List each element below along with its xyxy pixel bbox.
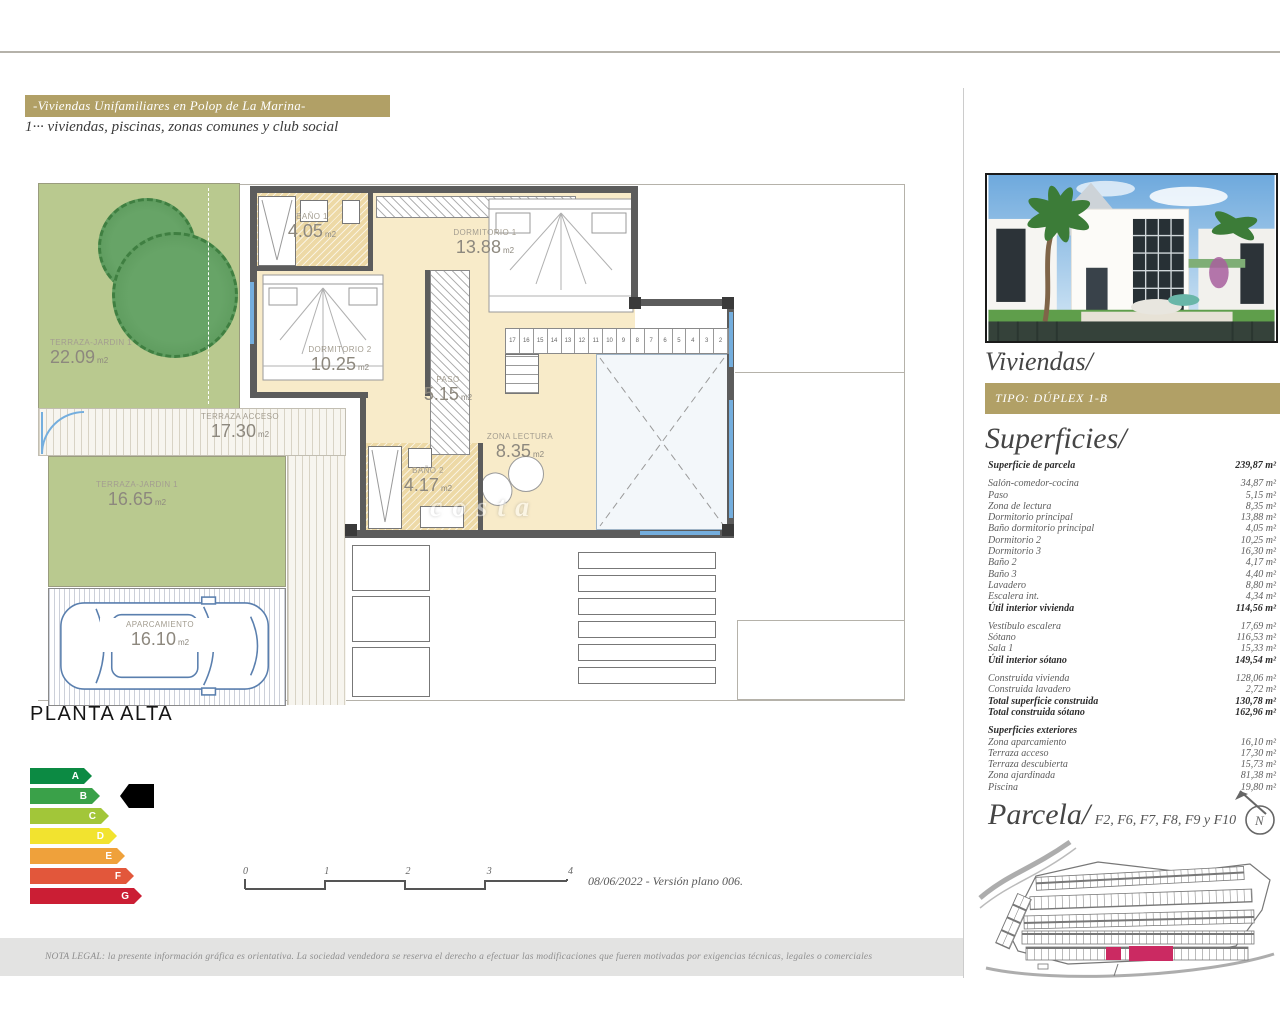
stair-tread: 17 — [506, 329, 520, 353]
superficies-row: Útil interior sótano149,54 m² — [988, 655, 1276, 666]
superficies-table: Superficie de parcela239,87 m²Salón-come… — [988, 460, 1276, 800]
access-door-arc — [38, 408, 90, 458]
stair-tread: 3 — [700, 329, 714, 353]
superficies-row: Dormitorio principal13,88 m² — [988, 512, 1276, 523]
stair-tread: 15 — [534, 329, 548, 353]
stair-tread: 6 — [659, 329, 673, 353]
stair-return-flight — [505, 354, 539, 394]
rear-patio-outline — [737, 620, 905, 700]
superficies-group: Vestíbulo escalera17,69 m²Sótano116,53 m… — [988, 621, 1276, 666]
stair-tread: 12 — [575, 329, 589, 353]
north-compass-icon: N — [1232, 788, 1280, 840]
wall-segment — [368, 192, 373, 270]
superficies-group: Superficie de parcela239,87 m² — [988, 460, 1276, 471]
development-title-banner: -Viviendas Unifamiliares en Polop de La … — [25, 95, 390, 117]
parcela-plots: F2, F6, F7, F8, F9 y F10 — [1095, 813, 1237, 828]
louver-slat — [578, 667, 716, 684]
stair-tread: 14 — [548, 329, 562, 353]
room-label-bedroom1: DORMITORIO 1 13.88m2 — [415, 228, 555, 258]
superficies-row: Superficies exteriores — [988, 725, 1276, 736]
column — [629, 297, 641, 309]
viviendas-heading: Viviendas/ — [985, 347, 1093, 377]
room-label-reading-zone: ZONA LECTURA 8.35m2 — [465, 432, 575, 462]
column — [722, 524, 734, 536]
scale-tick-labels: 01234 — [243, 866, 573, 877]
louver-slat — [578, 575, 716, 592]
superficies-heading: Superficies/ — [985, 422, 1127, 456]
scale-bar-line — [243, 877, 573, 891]
stair-tread: 11 — [589, 329, 603, 353]
louver-slat — [578, 552, 716, 569]
stair-tread: 9 — [617, 329, 631, 353]
superficies-row: Salón-comedor-cocina34,87 m² — [988, 478, 1276, 489]
wall-segment — [631, 299, 733, 306]
scale-tick-label: 1 — [324, 866, 329, 877]
legal-note-text: NOTA LEGAL: la presente información gráf… — [0, 952, 872, 962]
plan-title: PLANTA ALTA — [30, 703, 173, 726]
stair-tread: 5 — [673, 329, 687, 353]
wall-segment — [253, 266, 373, 271]
stair-tread: 7 — [645, 329, 659, 353]
wall-segment — [360, 396, 366, 536]
terrace-access-strip — [287, 456, 346, 705]
superficies-row: Dormitorio 210,25 m² — [988, 535, 1276, 546]
wall-segment — [253, 392, 368, 398]
superficies-group: Construida vivienda128,06 m²Construida l… — [988, 673, 1276, 718]
superficies-row: Útil interior vivienda114,56 m² — [988, 603, 1276, 614]
terrace-garden-2-area — [48, 456, 286, 587]
louver-slat — [578, 644, 716, 661]
room-label-parking: APARCAMIENTO 16.10m2 — [100, 618, 220, 652]
property-line — [735, 372, 905, 373]
window-glazing — [640, 531, 720, 535]
superficies-row: Baño 34,40 m² — [988, 569, 1276, 580]
stair-tread: 13 — [562, 329, 576, 353]
superficies-row: Terraza descubierta15,73 m² — [988, 759, 1276, 770]
parcela-heading-block: Parcela/ F2, F6, F7, F8, F9 y F10 — [988, 798, 1236, 832]
superficies-row: Sala 115,33 m² — [988, 643, 1276, 654]
window-glazing — [729, 312, 733, 367]
energy-grade-F: F — [30, 868, 134, 884]
window-glazing — [250, 282, 254, 344]
superficies-row: Sótano116,53 m² — [988, 632, 1276, 643]
superficies-row: Zona ajardinada81,38 m² — [988, 770, 1276, 781]
superficies-row: Total construida sótano162,96 m² — [988, 707, 1276, 718]
column — [722, 297, 734, 309]
garden-dashed-line — [208, 188, 210, 404]
superficies-row: Baño dormitorio principal4,05 m² — [988, 523, 1276, 534]
window-glazing — [729, 400, 733, 518]
energy-row: E — [30, 848, 230, 864]
room-label-hall: PASO 5.15m2 — [408, 375, 488, 405]
stair-tread: 16 — [520, 329, 534, 353]
room-label-bedroom2: DORMITORIO 2 10.25m2 — [275, 345, 405, 375]
superficies-row: Lavadero8,80 m² — [988, 580, 1276, 591]
superficies-row: Vestíbulo escalera17,69 m² — [988, 621, 1276, 632]
superficies-row: Zona aparcamiento16,10 m² — [988, 737, 1276, 748]
energy-rating-chart: ABCDEFG — [30, 768, 230, 908]
stair-tread: 4 — [686, 329, 700, 353]
highlighted-plot — [1129, 946, 1173, 961]
stair-tread: 8 — [631, 329, 645, 353]
energy-row: F — [30, 868, 230, 884]
scale-tick-label: 2 — [406, 866, 411, 877]
room-label-garden2: TERRAZA-JARDIN 1 16.65m2 — [72, 480, 202, 510]
wall-segment — [250, 186, 638, 193]
wardrobe-hatch — [430, 270, 470, 455]
development-title: -Viviendas Unifamiliares en Polop de La … — [33, 98, 306, 113]
energy-grade-D: D — [30, 828, 117, 844]
room-label-access-terrace: TERRAZA ACCESO 17.30m2 — [175, 412, 305, 442]
superficies-row: Dormitorio 316,30 m² — [988, 546, 1276, 557]
highlighted-plot — [1106, 947, 1121, 960]
superficies-row: Construida vivienda128,06 m² — [988, 673, 1276, 684]
sink-icon — [408, 448, 432, 468]
pergola-panel — [352, 647, 430, 697]
scale-tick-label: 0 — [243, 866, 248, 877]
superficies-row: Paso5,15 m² — [988, 490, 1276, 501]
energy-row: D — [30, 828, 230, 844]
compass-letter: N — [1254, 813, 1265, 828]
scale-tick-label: 3 — [487, 866, 492, 877]
superficies-group: Superficies exterioresZona aparcamiento1… — [988, 725, 1276, 793]
sidebar-divider — [963, 88, 964, 978]
void-cross-lines — [596, 354, 728, 530]
property-line — [240, 184, 905, 185]
parcela-site-map — [978, 836, 1278, 978]
superficies-row: Construida lavadero2,72 m² — [988, 684, 1276, 695]
energy-row: A — [30, 768, 230, 784]
energy-grade-G: G — [30, 888, 142, 904]
plan-version-caption: 08/06/2022 - Versión plano 006. — [588, 874, 743, 889]
room-label-bathroom1: BAÑO 1 4.05m2 — [262, 212, 362, 242]
superficies-row: Escalera int.4,34 m² — [988, 591, 1276, 602]
top-rule — [0, 51, 1280, 53]
louver-slat — [578, 621, 716, 638]
energy-grade-A: A — [30, 768, 92, 784]
energy-grade-B: B — [30, 788, 100, 804]
pergola-panel — [352, 596, 430, 642]
staircase: 171615141312111098765432 — [505, 328, 729, 354]
louver-slat — [578, 598, 716, 615]
energy-row: C — [30, 808, 230, 824]
plan-sheet-page: -Viviendas Unifamiliares en Polop de La … — [0, 0, 1280, 1024]
stair-tread: 2 — [714, 329, 728, 353]
column — [345, 524, 357, 536]
development-subtitle: 1··· viviendas, piscinas, zonas comunes … — [25, 119, 338, 136]
tipo-badge: TIPO: DÚPLEX 1-B — [985, 383, 1280, 414]
energy-grade-E: E — [30, 848, 125, 864]
watermark: costa — [430, 492, 539, 524]
room-label-garden1: TERRAZA-JARDIN 1 22.09m2 — [50, 338, 170, 368]
superficies-row: Superficie de parcela239,87 m² — [988, 460, 1276, 471]
pergola-panel — [352, 545, 430, 591]
parcela-heading: Parcela/ — [988, 798, 1090, 831]
superficies-row: Terraza acceso17,30 m² — [988, 748, 1276, 759]
wall-segment — [631, 186, 638, 306]
superficies-row: Total superficie construida130,78 m² — [988, 696, 1276, 707]
stair-tread: 10 — [603, 329, 617, 353]
superficies-row: Zona de lectura8,35 m² — [988, 501, 1276, 512]
legal-note-band: NOTA LEGAL: la presente información gráf… — [0, 938, 963, 976]
energy-grade-C: C — [30, 808, 109, 824]
scale-bar: 01234 — [243, 866, 573, 896]
superficies-group: Salón-comedor-cocina34,87 m²Paso5,15 m²Z… — [988, 478, 1276, 614]
scale-tick-label: 4 — [568, 866, 573, 877]
villa-render-photo — [985, 173, 1278, 343]
energy-row: G — [30, 888, 230, 904]
superficies-row: Baño 24,17 m² — [988, 557, 1276, 568]
